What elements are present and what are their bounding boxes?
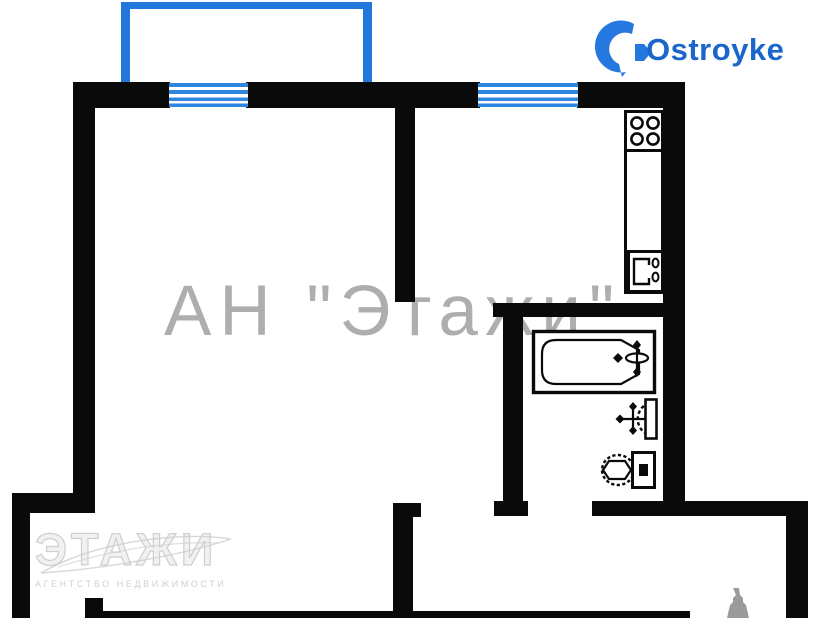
bottom-watermark: ЭТАЖИ АГЕНТСТВО НЕДВИЖИМОСТИ: [35, 527, 235, 589]
wall-lower-middle-notch: [413, 503, 421, 517]
ostroyke-house-icon: [592, 20, 652, 78]
gray-artifact: [727, 588, 749, 618]
wall-top-middle: [246, 82, 480, 108]
ostroyke-logo-text: Ostroyke: [646, 32, 784, 68]
toilet-icon: [602, 453, 655, 488]
wall-bottom: [85, 611, 690, 618]
balcony-line-top: [122, 2, 372, 9]
stove-burners-icon: [626, 112, 663, 151]
watermark-swoosh-icon: [33, 521, 238, 581]
balcony-line-right: [363, 2, 372, 84]
wall-bathroom-left: [503, 315, 523, 503]
floorplan-image: АН "Этажи" ЭТАЖИ АГЕНТСТВО НЕДВИЖИМОСТИ: [0, 0, 824, 618]
wall-right-lower: [786, 514, 808, 618]
wall-left: [73, 82, 95, 513]
wall-bathroom-foot: [494, 501, 528, 516]
kitchen-window: [478, 83, 578, 107]
wall-right: [663, 82, 685, 516]
living-room-window: [169, 83, 248, 107]
balcony-line-left: [121, 2, 130, 84]
washbasin-icon: [616, 400, 657, 439]
wall-room-divider: [395, 106, 415, 302]
kitchen-counter: [626, 112, 663, 293]
wall-corridor-top: [592, 501, 808, 516]
wall-lower-middle: [393, 503, 413, 618]
ostroyke-logo: Ostroyke: [592, 20, 652, 78]
kitchen-sink-icon: [629, 252, 663, 292]
wall-far-left: [12, 493, 30, 618]
